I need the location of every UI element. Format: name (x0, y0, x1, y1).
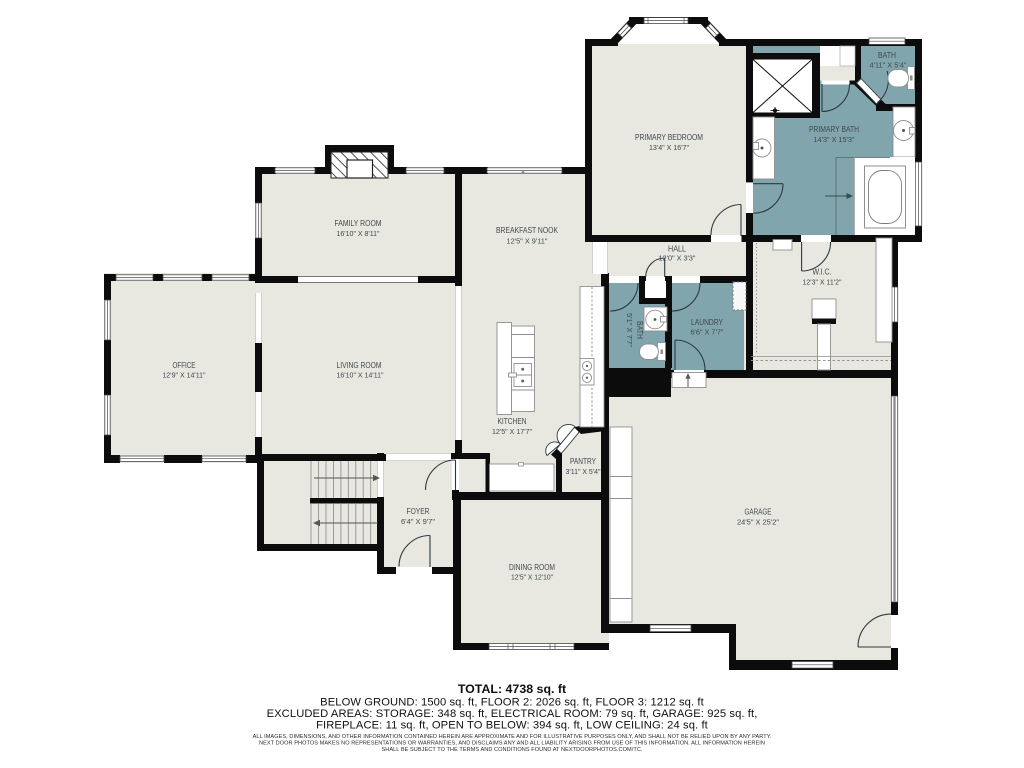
svg-text:PRIMARY BEDROOM: PRIMARY BEDROOM (635, 133, 703, 142)
svg-text:NEXT DOOR PHOTOS MAKES NO REPR: NEXT DOOR PHOTOS MAKES NO REPRESENTATION… (259, 741, 765, 747)
svg-text:DINING ROOM: DINING ROOM (509, 563, 555, 572)
svg-text:KITCHEN: KITCHEN (498, 417, 527, 426)
svg-text:16'10" X 8'11": 16'10" X 8'11" (337, 229, 380, 238)
svg-text:BELOW GROUND: 1500 sq. ft, FLO: BELOW GROUND: 1500 sq. ft, FLOOR 2: 2026… (320, 697, 704, 709)
svg-text:12'0" X 3'3": 12'0" X 3'3" (659, 254, 696, 263)
svg-text:12'5" X 12'10": 12'5" X 12'10" (511, 573, 553, 582)
svg-text:FAMILY ROOM: FAMILY ROOM (335, 219, 382, 228)
svg-text:BREAKFAST NOOK: BREAKFAST NOOK (496, 226, 558, 235)
svg-text:TOTAL: 4738 sq. ft: TOTAL: 4738 sq. ft (458, 682, 566, 696)
svg-text:13'4" X 16'7": 13'4" X 16'7" (649, 143, 689, 152)
svg-text:4'11" X 5'4": 4'11" X 5'4" (870, 61, 907, 70)
svg-text:12'5" X 9'11": 12'5" X 9'11" (507, 237, 548, 246)
svg-text:EXCLUDED AREAS: STORAGE: 348 s: EXCLUDED AREAS: STORAGE: 348 sq. ft, ELE… (267, 708, 758, 720)
svg-text:5'1" X 7'7": 5'1" X 7'7" (625, 313, 634, 347)
svg-text:24'5" X 25'2": 24'5" X 25'2" (737, 518, 779, 527)
svg-text:SHALL BE SUBJECT TO THE TERMS: SHALL BE SUBJECT TO THE TERMS AND CONDIT… (381, 747, 642, 753)
svg-text:OFFICE: OFFICE (173, 361, 196, 370)
svg-text:HALL: HALL (668, 245, 686, 254)
svg-text:6'6" X 7'7": 6'6" X 7'7" (691, 328, 724, 337)
svg-text:14'3" X 15'3": 14'3" X 15'3" (814, 135, 855, 144)
svg-text:PRIMARY BATH: PRIMARY BATH (809, 125, 859, 134)
svg-text:BATH: BATH (878, 51, 896, 60)
svg-text:W.I.C.: W.I.C. (813, 268, 832, 277)
svg-text:16'10" X 14'11": 16'10" X 14'11" (337, 371, 384, 380)
svg-text:12'9" X 14'11": 12'9" X 14'11" (163, 371, 206, 380)
svg-text:PANTRY: PANTRY (570, 457, 596, 466)
svg-text:BATH: BATH (635, 321, 644, 339)
svg-text:3'11" X 5'4": 3'11" X 5'4" (566, 467, 601, 476)
svg-text:12'5" X 17'7": 12'5" X 17'7" (492, 427, 532, 436)
svg-text:FOYER: FOYER (407, 507, 430, 516)
svg-text:6'4" X 9'7": 6'4" X 9'7" (401, 517, 435, 526)
svg-text:FIREPLACE: 11 sq. ft, OPEN TO: FIREPLACE: 11 sq. ft, OPEN TO BELOW: 394… (316, 720, 709, 732)
svg-text:GARAGE: GARAGE (745, 508, 772, 517)
svg-text:LAUNDRY: LAUNDRY (691, 318, 723, 327)
svg-text:ALL IMAGES, DIMENSIONS, AND OT: ALL IMAGES, DIMENSIONS, AND OTHER INFORM… (253, 734, 772, 740)
svg-text:LIVING ROOM: LIVING ROOM (337, 361, 382, 370)
svg-text:12'3" X 11'2": 12'3" X 11'2" (803, 278, 842, 287)
